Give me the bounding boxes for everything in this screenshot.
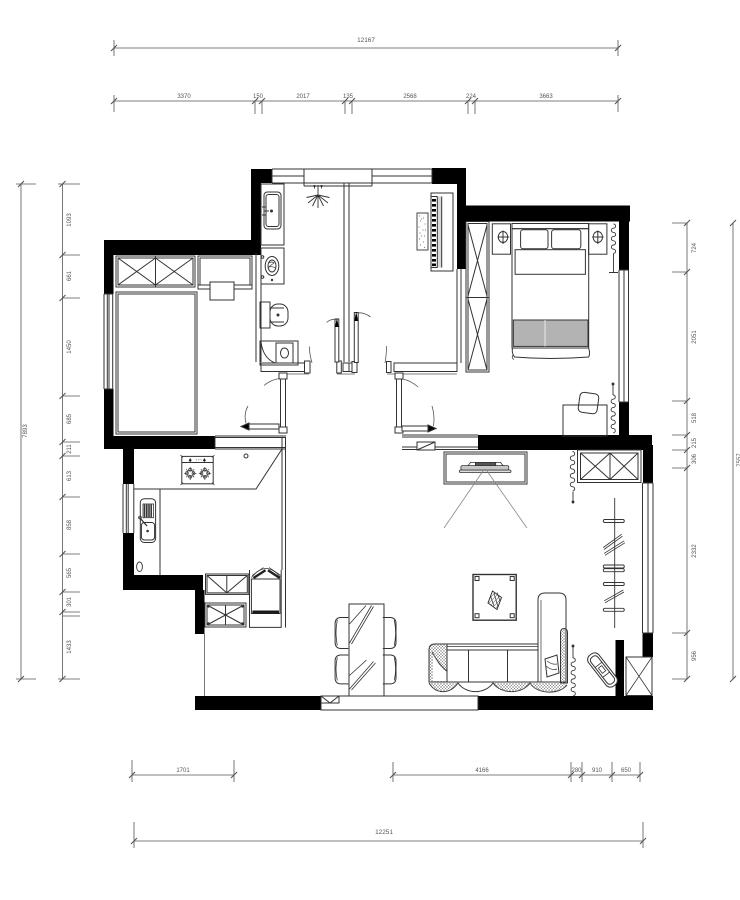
svg-text:650: 650 [621,768,632,774]
svg-text:2568: 2568 [403,94,417,100]
svg-text:910: 910 [592,768,603,774]
svg-text:858: 858 [67,519,73,530]
svg-text:565: 565 [67,567,73,578]
svg-text:224: 224 [466,94,477,100]
svg-text:306: 306 [692,453,698,464]
svg-text:661: 661 [67,270,73,281]
svg-text:215: 215 [692,437,698,448]
svg-text:3370: 3370 [177,94,191,100]
svg-text:518: 518 [692,412,698,423]
svg-text:724: 724 [692,242,698,253]
svg-text:2017: 2017 [296,94,310,100]
svg-text:1093: 1093 [67,213,73,227]
svg-text:7893: 7893 [23,424,29,438]
svg-text:2051: 2051 [692,330,698,344]
svg-text:1433: 1433 [67,640,73,654]
svg-text:3663: 3663 [539,94,553,100]
svg-text:301: 301 [67,596,73,607]
svg-text:956: 956 [692,650,698,661]
svg-text:150: 150 [253,94,264,100]
svg-text:12167: 12167 [357,37,375,44]
svg-text:135: 135 [343,94,354,100]
svg-text:280: 280 [571,768,582,774]
svg-text:1701: 1701 [176,768,190,774]
svg-text:211: 211 [67,444,73,454]
svg-text:1450: 1450 [67,340,73,354]
svg-text:4166: 4166 [475,768,489,774]
svg-text:2332: 2332 [692,544,698,558]
svg-text:685: 685 [67,413,73,424]
svg-text:12251: 12251 [375,829,393,836]
svg-text:613: 613 [67,470,73,481]
